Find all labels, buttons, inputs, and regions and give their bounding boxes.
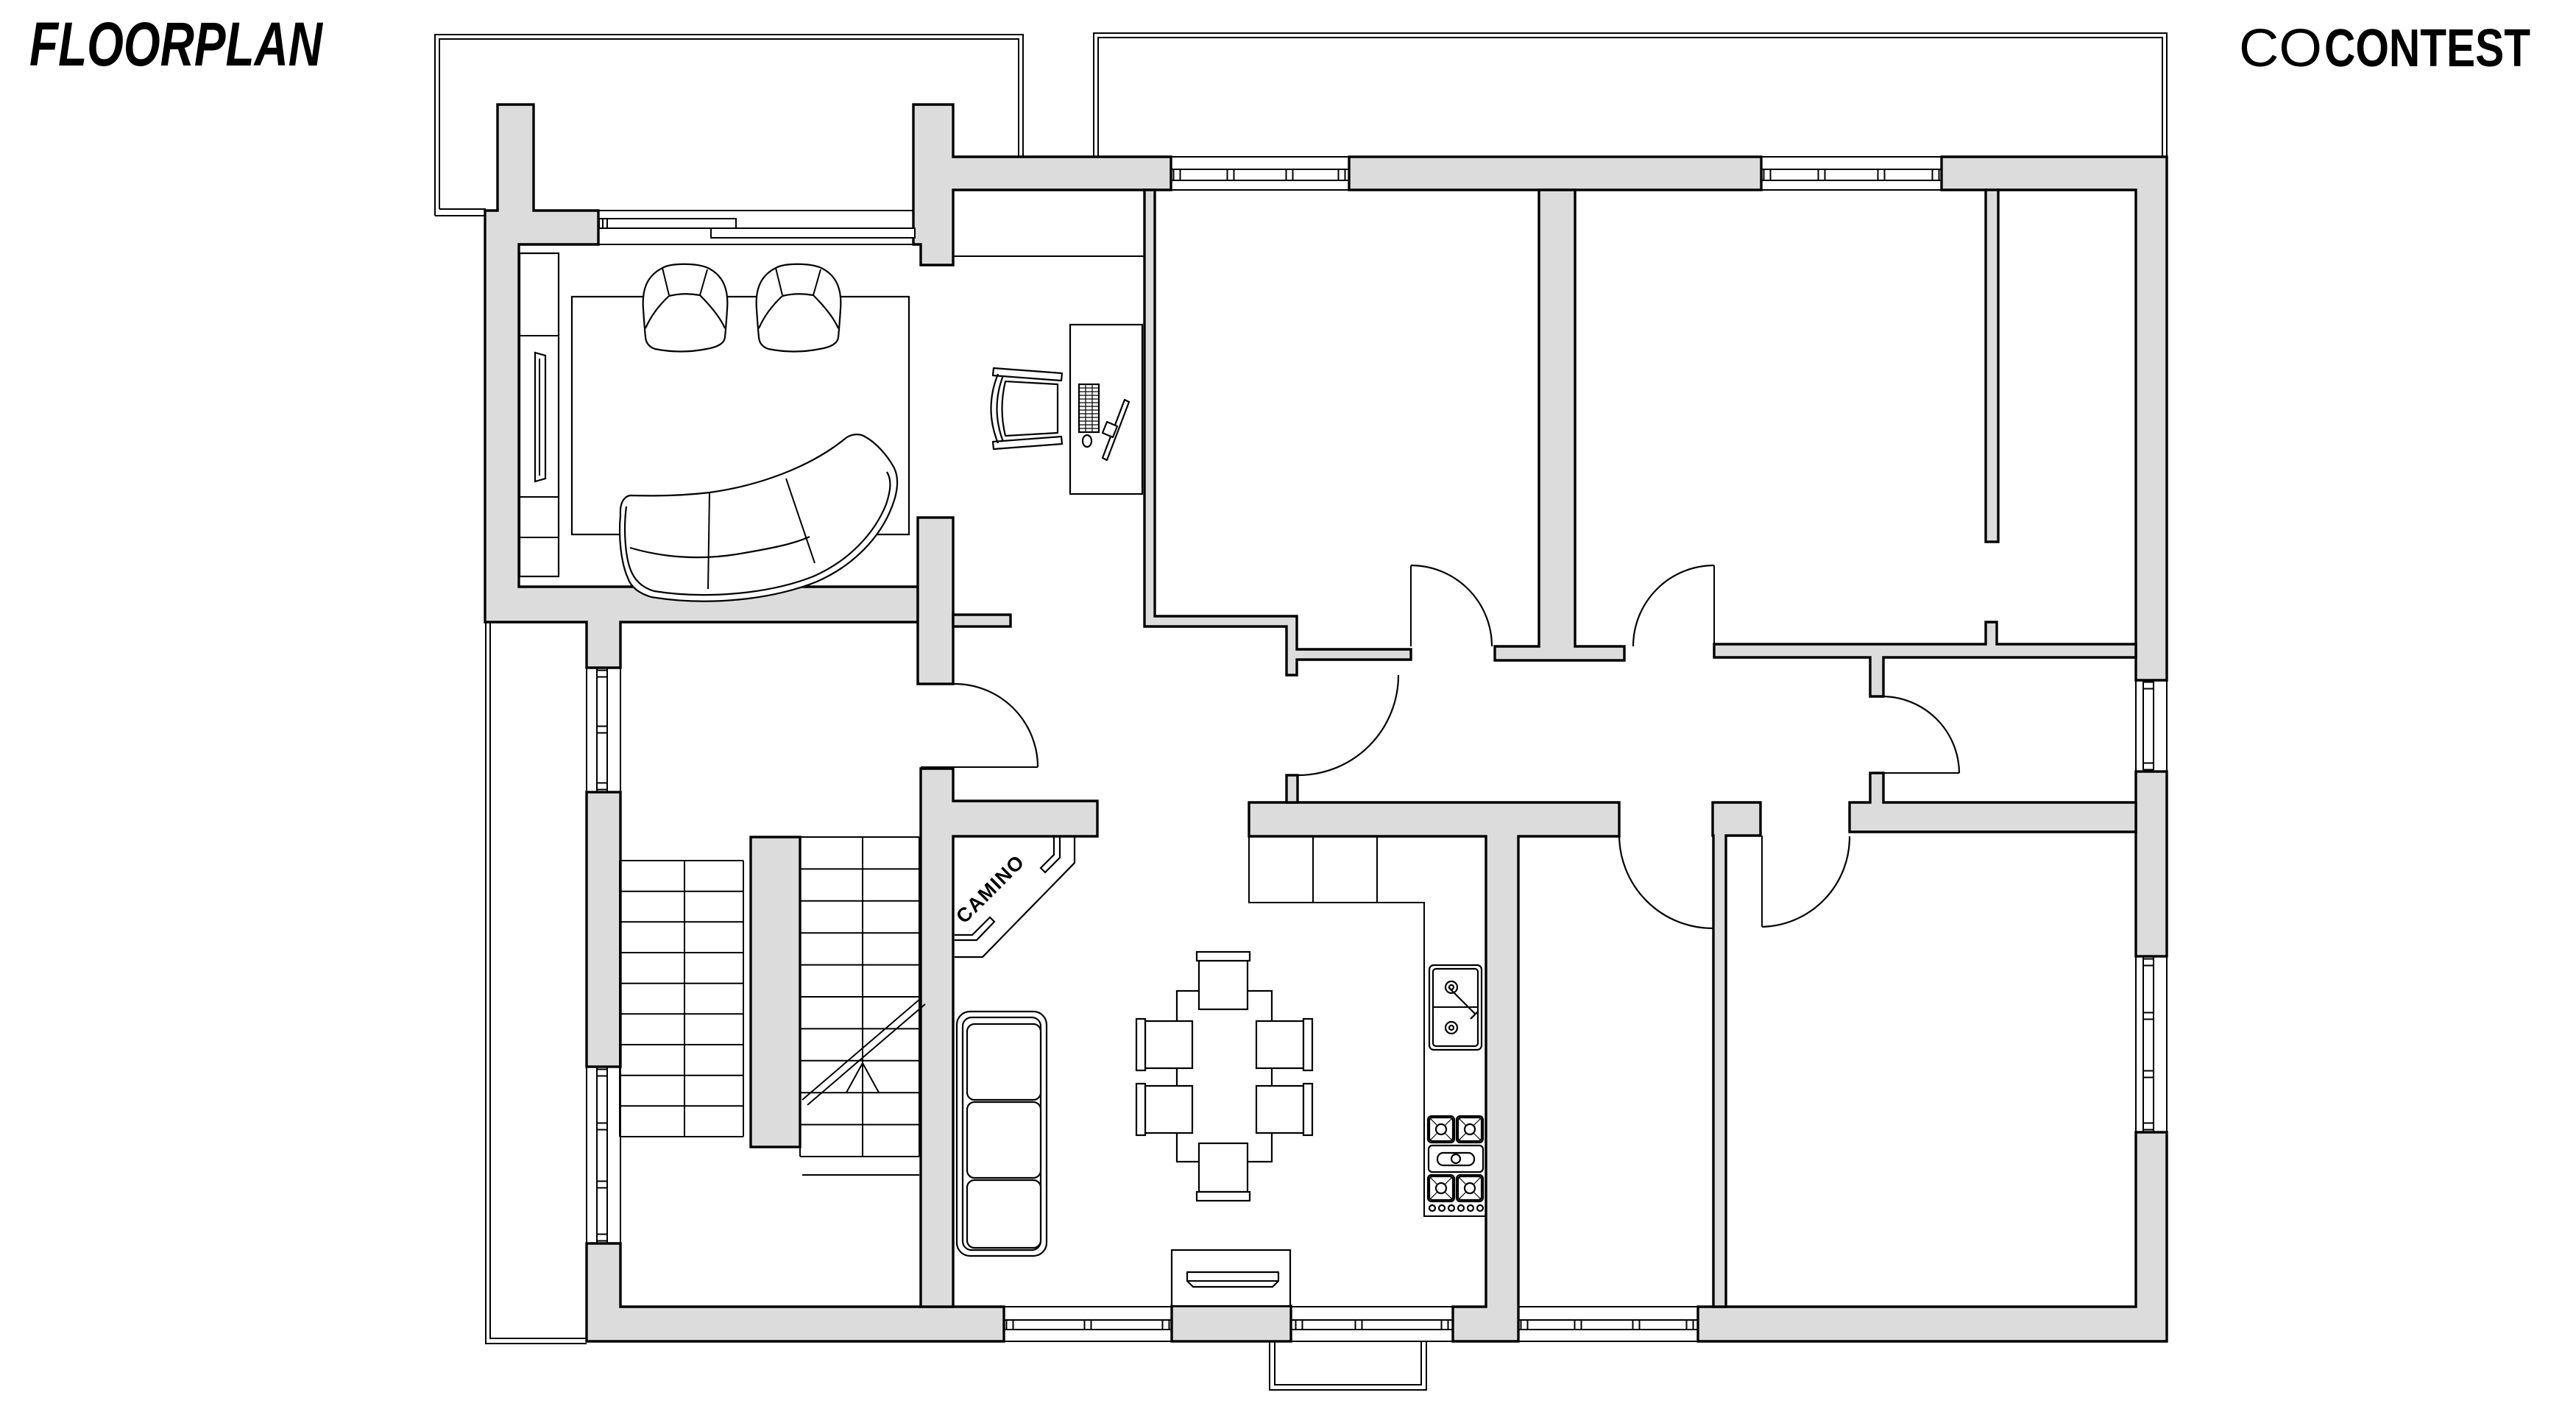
svg-text:CO: CO [2239,19,2322,78]
svg-text:FLOORPLAN: FLOORPLAN [29,10,324,79]
svg-text:CONTEST: CONTEST [2324,19,2530,78]
